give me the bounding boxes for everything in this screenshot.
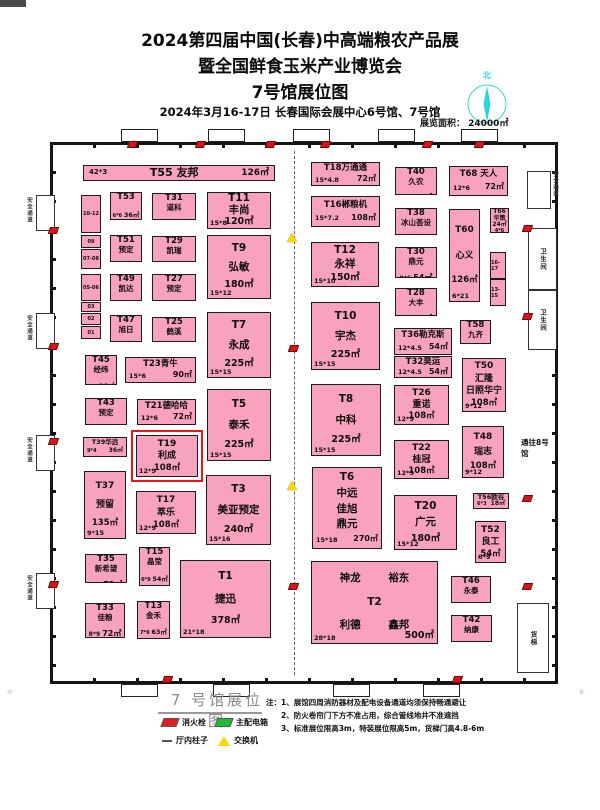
booth-name: 裕东 [388,573,409,585]
booth-id: T3 [231,484,245,496]
booth-dims: 9*6 [400,275,414,278]
hydrant-legend-icon [160,718,179,727]
note-line-2: 2、防火卷帘门下方不准占用，综合管线地井不准遮挡 [281,709,484,722]
strip-cell-09: 09 [81,235,101,248]
booth-area: 36㎡ [124,211,140,219]
booth-size-row: 12*672㎡ [138,413,195,422]
booth-dims: 12*6 [453,185,470,192]
booth-area: 240㎡ [224,525,253,536]
booth-name: 鼎元 [337,519,358,531]
booth-dims: 12*9 [397,416,414,423]
room-label: 货梯 [528,631,538,646]
booth-T68: T68 天人12*672㎡ [449,166,508,196]
note-line-3: 3、标准展位限高3m，特装展位限高5m，货梯门高4.8-6m [281,722,484,735]
booth-size-row: 6*318㎡ [474,501,508,508]
booth-size-row: 15*4.872㎡ [312,175,379,184]
booth-id: T60 [455,225,474,235]
booth-dims: 28*18 [314,635,336,642]
booth-area: 72㎡ [103,580,122,583]
hall-outline: 通往8号馆 42*3T55 友邦126㎡T536*6 36㎡T51预定6*6 3… [50,142,558,684]
booth-size-row: 6*9 54㎡ [141,567,168,585]
booth-area: 108㎡ [351,214,376,223]
freight-elevator-room: 货梯 [517,603,549,673]
booth-size-row: 6*6 36㎡ [113,293,140,301]
network-switch-icon [287,481,297,490]
safety-exit-label: 安全通道 [25,197,33,223]
wall-ticks-right [552,145,555,681]
footer-title-underline [158,712,262,714]
booth-name: 利德 [340,620,361,632]
title-line-3: 7号馆展位图 [0,78,600,103]
booth-area: 72㎡ [357,175,376,184]
booth-size-row: 8*9 72㎡ [89,622,122,638]
booth-dims: 12*4.5 [398,345,422,352]
booth-dims: 6*9 [478,554,490,561]
wall-ticks-bottom [53,678,555,681]
booth-area: 54㎡ [413,314,432,316]
top-wall-box [208,129,245,142]
booth-title: T23青牛 [143,360,178,370]
booth-id: T9 [232,243,246,255]
booth-T21: T21德哈哈12*672㎡ [137,399,196,425]
booth-size-row: 9*436㎡ [84,448,126,455]
booth-T66: T66华策24㎡4*6 [490,208,509,233]
booth-size-row: 15*18270㎡ [313,535,381,544]
booth-dims: 9*12 [465,403,482,410]
booth-size-row: 9*6 54㎡ [400,266,433,278]
booth-T52: T52良工54㎡6*9 [475,521,506,563]
booth-dims: 6*3 [477,502,487,508]
fire-hydrant-icon [474,141,485,148]
notes-block: 注： 1、展馆四周消防器材及配电设备通道均须保持畅通避让2、防火卷帘门下方不准占… [266,696,476,735]
booth-area: 120㎡ [224,217,253,228]
booth-id: T2 [367,597,381,609]
booth-T11: T11丰尚120㎡15*8 [207,192,271,229]
booth-dims: 9*15 [87,530,104,537]
top-wall-box [121,129,158,142]
notes-label: 注： [266,696,281,735]
switch-legend-icon [218,736,230,746]
booth-area: 54㎡ [413,193,432,195]
booth-area: 54㎡ [152,575,168,583]
booth-area: 270㎡ [353,535,378,544]
top-wall-box [378,129,415,142]
booth-name: 瑞志 [474,447,492,457]
booth-name: 捷迅 [215,594,236,606]
booth-area: 108㎡ [154,464,180,474]
booth-area: 18㎡ [491,501,505,508]
booth-area: 500㎡ [405,631,434,642]
booth-id: T52 [481,525,500,535]
booth-title: T16郴粮机 [324,201,367,211]
booth-area: 108㎡ [153,521,179,531]
booth-area: 54㎡ [103,424,122,425]
booth-dims: 15*6 [129,373,146,380]
booth-dims: 4*6 [495,229,505,233]
booth-T33: T33佳粮8*9 72㎡ [85,603,125,638]
booth-name: 金禾 [146,612,161,620]
booth-area: 225㎡ [331,435,360,446]
safety-exit-label: 安全通道 [551,171,559,197]
booth-dims: 12*9 [139,468,156,475]
safety-exit-door [36,573,55,609]
strip-cell-16-17: 16-17 [490,252,506,279]
booth-dims: 9*4 [87,449,97,455]
booth-dims: 6*21 [452,293,469,300]
fire-hydrant-icon [522,495,533,502]
strip-cell-03: 03 [81,302,101,312]
booth-dims: 12*9 [397,470,414,477]
booth-size-row: 9*6 54㎡ [400,227,433,235]
booth-T25: T25鹤溪9*6 54㎡ [152,317,196,342]
booth-T5: T5泰禾225㎡15*15 [207,389,271,461]
booth-area: 54㎡ [413,273,432,278]
booth-T23: T23青牛15*690㎡ [125,357,196,383]
booth-name: 纳康 [464,626,479,634]
booth-area: 126㎡ [241,168,269,178]
fire-hydrant-icon [48,227,59,234]
booth-name: 鼎元 [409,258,424,266]
booth-T17: T17萃乐108㎡12*9 [136,491,196,534]
booth-name: 泰禾 [229,420,250,432]
compass-north-label: 北 [483,70,491,80]
restroom: 卫生间 [528,228,557,290]
bottom-wall-box [121,684,158,697]
booth-T29: T29凯瑞9*6 54㎡ [152,236,196,262]
booth-id: T7 [232,320,246,332]
fire-hydrant-icon [522,583,533,590]
booth-name: 冰山荟设 [401,219,431,227]
booth-dims: 15*12 [397,541,419,548]
booth-T55: 42*3T55 友邦126㎡ [83,165,275,181]
booth-T22: T22桂冠108㎡12*9 [394,440,449,479]
fire-hydrant-icon [48,438,59,445]
booth-T8: T8中科225㎡15*15 [311,384,381,456]
booth-size-row: 12*4.554㎡ [395,368,451,377]
booth-name: 永祥 [335,259,356,271]
booth-area: 72㎡ [102,629,121,638]
booth-T56: T56欧谷6*318㎡ [473,493,509,509]
safety-exit-label: 安全通道 [25,437,33,463]
booth-name: 重诺 [412,400,430,410]
booth-T28: T28大丰9*6 54㎡ [395,288,437,316]
booth-size-row: 6*6 36㎡ [113,203,140,220]
booth-T47: T47旭日6*6 36㎡ [110,315,142,342]
booth-area: 36㎡ [109,448,123,455]
booth-area: 54㎡ [429,368,448,377]
booth-size-row: 12*4.554㎡ [395,343,451,352]
booth-T53: T536*6 36㎡ [110,192,142,220]
booth-T31: T31道科9*6 54㎡ [152,193,196,220]
booth-T36: T36勒克斯12*4.554㎡ [394,328,452,355]
booth-name: 九齐 [468,331,483,339]
booth-dims: 12*6 [141,415,158,422]
booth-name: 道科 [167,204,182,212]
booth-T16: T16郴粮机15*7.2108㎡ [311,196,380,227]
booth-name: 广元 [415,517,436,529]
booth-size-row: 9*6 54㎡ [400,186,433,195]
booth-T27: T27预定9*6 54㎡ [152,274,196,301]
booth-T37: T37预留135㎡9*15 [84,471,126,539]
floor-plan-poster: 2024第四届中国(长春)中高端粮农产品展 暨全国鲜食玉米产业博览会 7号馆展位… [0,0,600,810]
safety-exit-door [527,171,551,209]
booth-id: T5 [232,399,246,411]
booth-id: T37 [96,481,115,491]
booth-name: 佳旭 [337,504,358,516]
booth-area: 54㎡ [468,602,487,603]
booth-dims: 6*6 [88,384,99,385]
notes-list: 1、展馆四周消防器材及配电设备通道均须保持畅通避让2、防火卷帘门下方不准占用，综… [281,696,484,735]
booth-area: 54㎡ [171,300,190,301]
booth-T19: T19利成108㎡12*9 [136,435,198,477]
booth-area: 54㎡ [469,641,488,642]
booth-id-row: T2 [312,597,437,609]
booth-size-row: 6*6 36㎡ [113,334,140,342]
fire-hydrant-icon [48,343,59,350]
fire-hydrant-icon [288,345,299,352]
fire-hydrant-icon [320,141,331,148]
booth-T40: T40久农9*6 54㎡ [395,167,437,195]
legend-item-pillar: 厅内柱子 [162,735,208,746]
booth-name: 利成 [158,451,176,461]
booth-dims: 9*8 [90,582,104,583]
booth-size-row: 15*690㎡ [126,371,195,380]
booth-id: T20 [415,501,437,513]
corridor-to-hall8-label: 通往8号馆 [521,437,555,459]
fold-mark-right: ✳ [578,688,586,698]
booth-T12: T12永祥150㎡15*10 [311,242,379,287]
booth-area: 63㎡ [151,628,167,636]
booth-dims: 15*7.2 [315,215,339,222]
booth-size-row: 9*6 54㎡ [158,212,191,220]
booth-name: 凯瑞 [167,247,182,255]
pillar-legend-icon [162,740,172,742]
booth-T50: T50汇隆日照华宁108㎡9*12 [462,358,506,412]
booth-T42: T42纳康9*6 54㎡ [451,615,492,642]
booth-name: 鹤溪 [167,328,182,336]
booth-name: 心义 [455,251,473,261]
booth-T45: T45经纬6*6 36㎡ [85,355,117,385]
booth-id: T8 [339,394,353,406]
booth-size-row: 7*9 63㎡ [140,620,167,638]
safety-exit-label: 安全通道 [25,315,33,341]
scan-artifact [0,0,26,7]
booth-dims: 12*4.5 [398,369,422,376]
fire-hydrant-icon [162,676,173,683]
booth-name: 永泰 [464,587,479,595]
booth-size-row: 9*6 54㎡ [455,595,488,603]
booth-name: 大丰 [409,299,424,307]
booth-T9: T9弘敏180㎡15*12 [207,235,271,299]
fire-hydrant-icon [265,141,276,148]
booth-T15: T15晶莹6*9 54㎡ [139,547,170,586]
booth-title: T21德哈哈 [145,402,188,412]
booth-area: 36㎡ [99,382,115,385]
booth-dims: 15*10 [314,278,336,285]
booth-T32: T32昊运12*4.554㎡ [394,356,452,378]
booth-T35: T35新希望9*8 72㎡ [85,554,127,583]
booth-name: 桂冠 [412,455,430,465]
fire-hydrant-icon [195,141,206,148]
legend-label: 厅内柱子 [176,735,208,746]
strip-cell-02: 02 [81,313,101,325]
booth-name: 弘敏 [229,262,250,274]
booth-dims: 15*18 [316,537,338,544]
exhibition-area-label: 展览面积： 24000㎡ [420,116,508,129]
booth-id: T22 [412,443,431,453]
fire-hydrant-icon [452,676,463,683]
booth-size-row: 15*7.2108㎡ [312,214,379,223]
booth-dims: 6*6 [113,213,124,219]
booth-area: 54㎡ [171,219,190,220]
booth-id: T17 [157,495,176,505]
booth-area: 126㎡ [451,276,477,286]
booth-name: 预留 [96,500,114,510]
booth-T49: T49凯达6*6 36㎡ [110,274,142,301]
room-label: 卫生间 [538,248,548,271]
fire-hydrant-icon [288,583,299,590]
booth-T60: T60心义126㎡6*21 [449,209,480,302]
booth-T20: T20广元180㎡15*12 [394,495,457,550]
booth-title: T55 友邦 [150,167,199,179]
booth-id: T19 [158,439,177,449]
legend-label: 主配电箱 [236,717,268,728]
booth-id: T6 [340,472,354,484]
booth-name: 神龙 [340,573,361,585]
title-line-2: 暨全国鲜食玉米产业博览会 [0,52,600,77]
strip-cell-07-08: 07-08 [81,249,101,269]
booth-name: 晶莹 [147,558,162,566]
booth-name: 预定 [167,285,182,293]
booth-id: T12 [334,245,356,257]
booth-size-row: 9*6 54㎡ [158,293,191,301]
note-line-1: 1、展馆四周消防器材及配电设备通道均须保持畅通避让 [281,696,484,709]
legend-label: 消火栓 [182,717,206,728]
strip-cell-10-12: 10-12 [81,195,101,233]
booth-dims: 12*9 [139,525,156,532]
restroom: 卫生间 [528,290,557,350]
booth-size-row: 9*6 54㎡ [158,255,191,262]
legend-item-hydrant: 消火栓 [162,717,206,728]
booth-dims: 15*15 [210,452,232,459]
booth-dims: 15*15 [314,361,336,368]
booth-name: 凯达 [119,285,134,293]
booth-id: T50 [475,361,494,371]
safety-exit-label: 安全通道 [25,575,33,601]
legend-item-power: 主配电箱 [216,717,268,728]
fire-hydrant-icon [48,581,59,588]
booth-dims: 9*12 [465,469,482,476]
booth-T46: T46永泰9*6 54㎡ [451,576,491,603]
network-switch-icon [287,233,297,242]
legend: 消火栓主配电箱厅内柱子交换机 [162,717,282,746]
booth-dims: 21*18 [183,629,205,636]
booth-size-row: 6*6 36㎡ [113,254,140,262]
booth-T6: T6中远佳旭鼎元15*18270㎡ [312,467,382,549]
booth-title: T39华远 [92,439,118,446]
booth-T26: T26重诺108㎡12*9 [394,385,449,425]
booth-title: T18万通通 [324,164,367,174]
booth-name: 经纬 [94,366,109,374]
fold-mark-left: ✳ [6,688,14,698]
booth-name: 美亚预定 [218,505,260,517]
booth-size-row: 12*672㎡ [450,183,507,192]
booth-T2: 神龙裕东T2利德鑫邦28*18500㎡ [311,561,438,644]
strip-cell-01: 01 [81,326,101,339]
strip-cell-13-15: 13-15 [490,279,506,306]
booth-size-row: 9*6 54㎡ [455,634,488,642]
booth-id: T1 [218,571,232,583]
booth-area: 135㎡ [92,519,118,529]
booth-size-row: 6*6 36㎡ [88,374,115,385]
booth-name: 中科 [336,415,357,427]
legend-item-switch: 交换机 [218,735,258,746]
booth-name: 中远 [337,488,358,500]
booth-T13: T13金禾7*9 63㎡ [137,601,170,639]
booth-id: T53 [117,193,135,203]
booth-names-row: 神龙裕东 [312,573,437,585]
booth-T43: T43预定9*6 54㎡ [85,398,127,425]
room-label: 卫生间 [538,309,548,332]
title-line-1: 2024第四届中国(长春)中高端粮农产品展 [0,26,600,51]
booth-size-row: 9*8 72㎡ [90,573,123,583]
strip-cell-05-06: 05-06 [81,274,101,301]
booth-T1: T1捷迅378㎡21*18 [180,560,271,638]
booth-area: 378㎡ [211,616,240,627]
booth-id: T10 [335,311,357,323]
booth-area: 225㎡ [224,440,253,451]
booth-T39: T39华远9*436㎡ [83,437,127,457]
booth-size-row: 6*6 36㎡ [462,339,489,344]
safety-exit-door [36,195,55,231]
booth-size-row: 9*6 54㎡ [400,307,433,316]
booth-area: 72㎡ [485,183,504,192]
booth-name: 新希望 [95,565,118,573]
booth-dims: 15*15 [314,447,336,454]
booth-title: T68 天人 [460,170,498,180]
booth-id: T48 [474,432,493,442]
fire-hydrant-icon [127,141,138,148]
booth-name: 日照华宁 [466,386,502,396]
booth-area: 72㎡ [173,413,192,422]
booth-T3: T3美亚预定240㎡15*16 [206,475,271,545]
booth-dims: 8*9 [89,631,103,638]
booth-title: T32昊运 [406,358,441,368]
booth-T48: T48瑞志108㎡9*12 [462,426,504,478]
booth-T18: T18万通通15*4.872㎡ [311,162,380,186]
power-legend-icon [214,718,233,727]
title-date-venue: 2024年3月16-17日 长春国际会展中心6号馆、7号馆 [0,104,600,120]
booth-title: T36勒克斯 [401,331,444,341]
booth-T58: T58九齐6*6 36㎡ [460,320,491,344]
booth-size-row: 9*6 54㎡ [90,417,123,425]
booth-T10: T10宇杰225㎡15*15 [311,302,380,370]
booth-name: 萃乐 [157,508,175,518]
booth-T51: T51预定6*6 36㎡ [110,235,142,262]
booth-name: 旭日 [119,326,134,334]
booth-dims: 15*4.8 [315,177,339,184]
booth-dims: 15*16 [209,536,231,543]
booth-size-row: 9*6 54㎡ [158,336,191,342]
legend-label: 交换机 [234,735,258,746]
fire-hydrant-icon [422,141,433,148]
booth-dims: 15*15 [210,369,232,376]
booth-name: 宇杰 [335,331,356,343]
booth-T38: T38冰山荟设9*6 54㎡ [395,208,437,235]
booth-dims: 15*12 [210,290,232,297]
booth-dims: 42*3 [89,169,107,177]
booth-id: T26 [412,388,431,398]
